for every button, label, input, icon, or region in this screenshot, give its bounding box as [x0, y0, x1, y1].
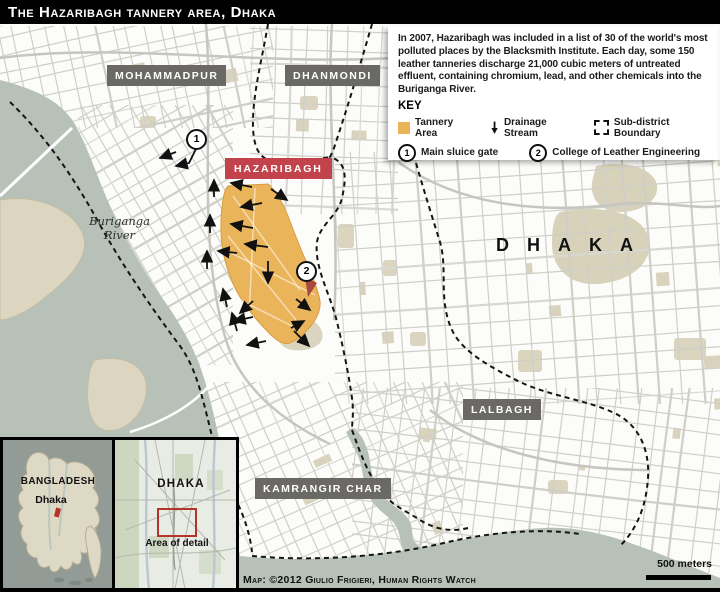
key-marker2-icon: 2	[529, 144, 547, 162]
dhaka-inset: DHAKA Area of detail	[115, 440, 236, 589]
marker-college: 2	[296, 261, 317, 282]
river-label-line1: Buriganga	[72, 215, 167, 229]
key-marker1-icon: 1	[398, 144, 416, 162]
intro-text: In 2007, Hazaribagh was included in a li…	[398, 33, 709, 97]
label-mohammadpur: MOHAMMADPUR	[107, 65, 226, 86]
key-marker2-label: College of Leather Engineering	[552, 147, 700, 158]
label-buriganga-river: Buriganga River	[72, 215, 167, 242]
label-lalbagh: LALBAGH	[463, 399, 541, 420]
boundary-swatch-icon	[594, 120, 609, 135]
river-label-line2: River	[72, 229, 167, 243]
key-tannery-label: Tannery Area	[415, 117, 472, 139]
key-heading: KEY	[398, 100, 709, 112]
inset-city-label: DHAKA	[141, 478, 221, 490]
infographic-map: MOHAMMADPUR DHANMONDI HAZARIBAGH DHAKA L…	[0, 0, 720, 592]
description-panel: In 2007, Hazaribagh was included in a li…	[388, 26, 718, 160]
key-drainage-label: Drainage Stream	[504, 117, 576, 139]
inset-country-label: BANGLADESH	[10, 476, 106, 487]
key-marker1-label: Main sluice gate	[421, 147, 498, 158]
key-row-2: 1 Main sluice gate 2 College of Leather …	[398, 144, 709, 162]
scale-label: 500 meters	[640, 558, 712, 570]
locator-inset: BANGLADESH Dhaka	[0, 437, 239, 592]
area-of-detail-caption: Area of detail	[125, 538, 229, 549]
scale-bar	[646, 575, 711, 580]
area-of-detail-rect	[157, 508, 197, 537]
label-dhanmondi: DHANMONDI	[285, 65, 380, 86]
bottom-border	[0, 588, 720, 592]
label-dhaka: DHAKA	[496, 235, 651, 256]
map-credit: Map: ©2012 Giulio Frigieri, Human Rights…	[243, 574, 476, 586]
tannery-area-swatch	[398, 122, 410, 134]
title-bar: The Hazaribagh tannery area, Dhaka	[0, 0, 720, 24]
page-title: The Hazaribagh tannery area, Dhaka	[8, 4, 276, 21]
inset-dhaka-label: Dhaka	[3, 494, 99, 506]
key-boundary-label: Sub-district Boundary	[614, 117, 709, 139]
label-kamrangir-char: KAMRANGIR CHAR	[255, 478, 391, 499]
key-row-1: Tannery Area Drainage Stream Sub-distric…	[398, 117, 709, 139]
bangladesh-inset: BANGLADESH Dhaka	[3, 440, 115, 589]
marker-main-sluice-gate: 1	[186, 129, 207, 150]
drainage-arrow-icon	[490, 120, 499, 135]
label-hazaribagh: HAZARIBAGH	[225, 158, 332, 179]
